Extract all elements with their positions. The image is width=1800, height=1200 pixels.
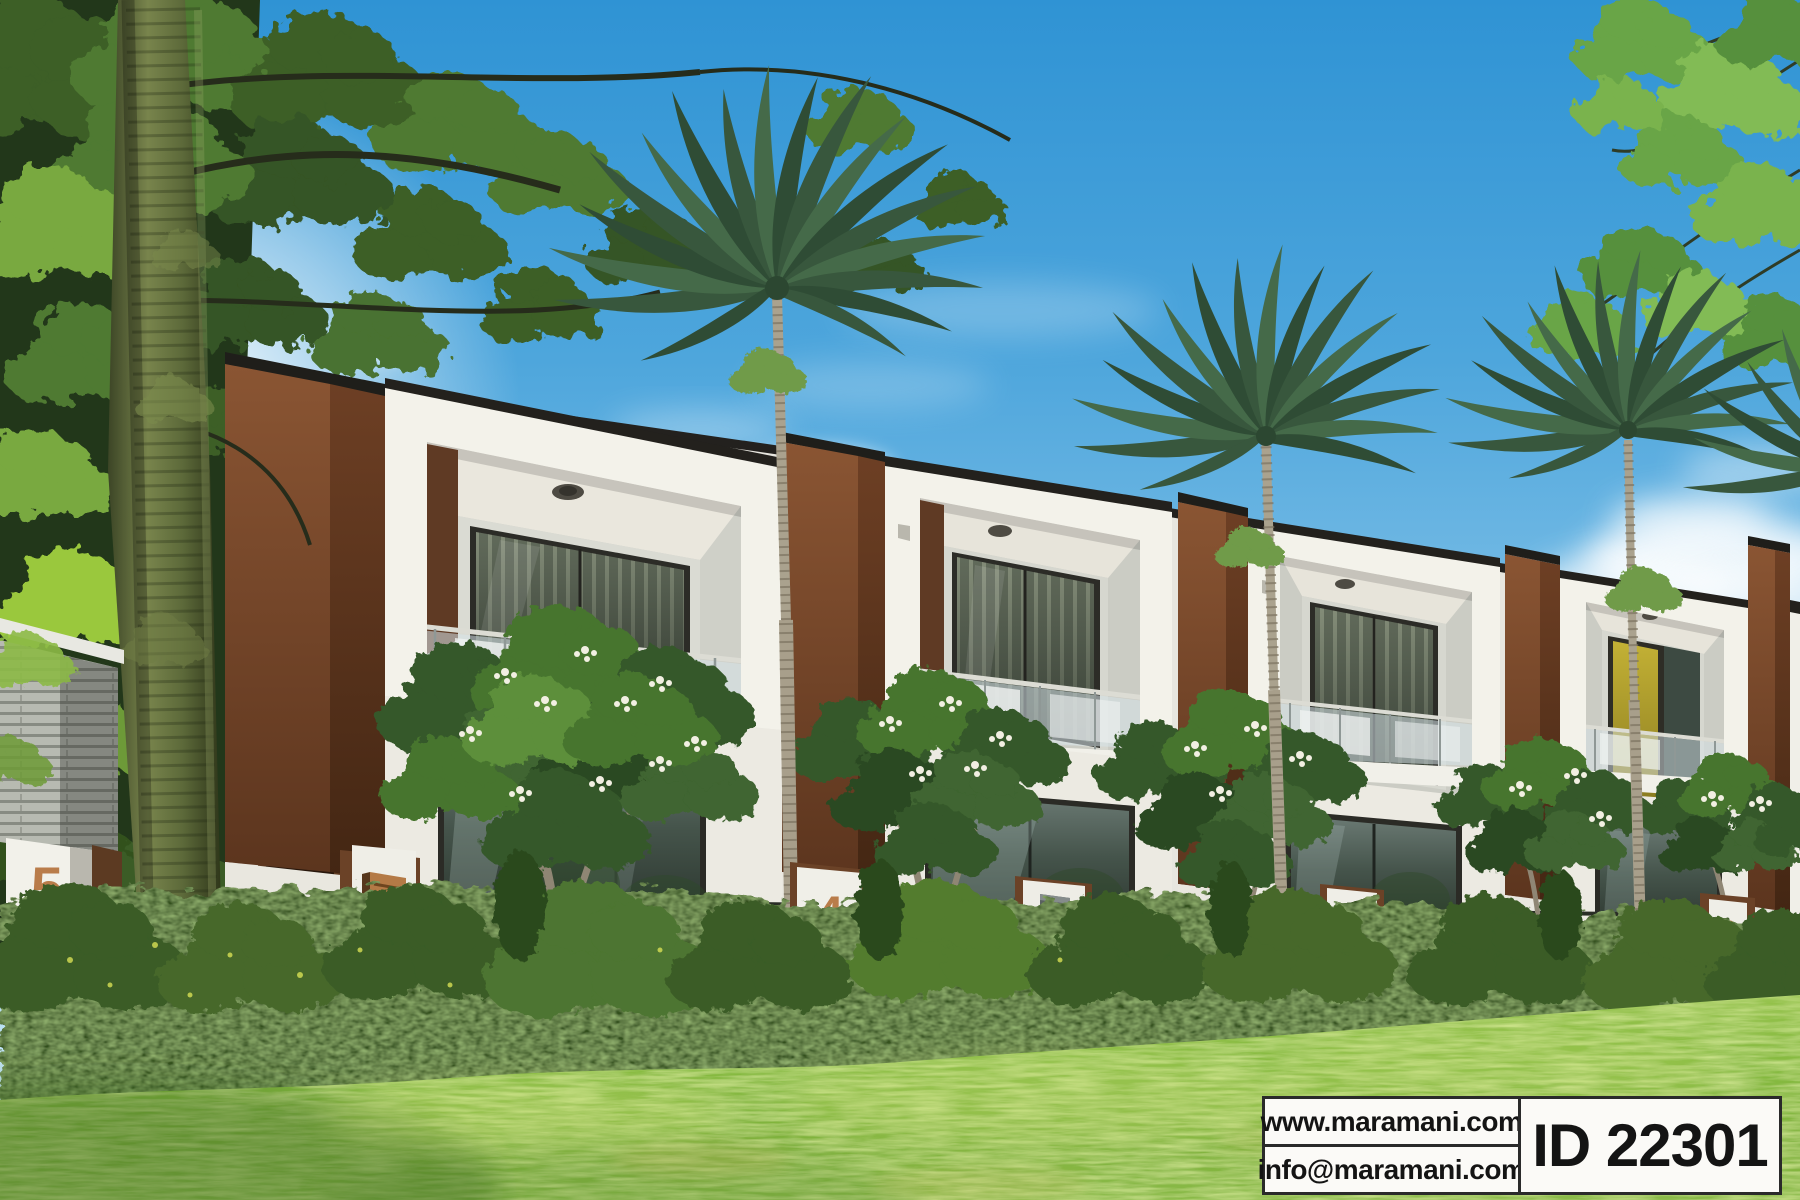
house-5-edge [1790, 600, 1800, 952]
watermark-plan-id: ID 22301 [1518, 1096, 1782, 1195]
watermark: www.maramani.com info@maramani.com ID 22… [1262, 1096, 1782, 1195]
watermark-contact-box: www.maramani.com info@maramani.com [1262, 1096, 1521, 1195]
ceiling-light [988, 525, 1012, 537]
ceiling-light [1335, 579, 1355, 589]
watermark-website: www.maramani.com [1262, 1096, 1521, 1147]
architectural-render: 5 4 3 2 [0, 0, 1800, 1200]
render-canvas: 5 4 3 2 [0, 0, 1800, 1200]
watermark-email: info@maramani.com [1262, 1144, 1521, 1195]
